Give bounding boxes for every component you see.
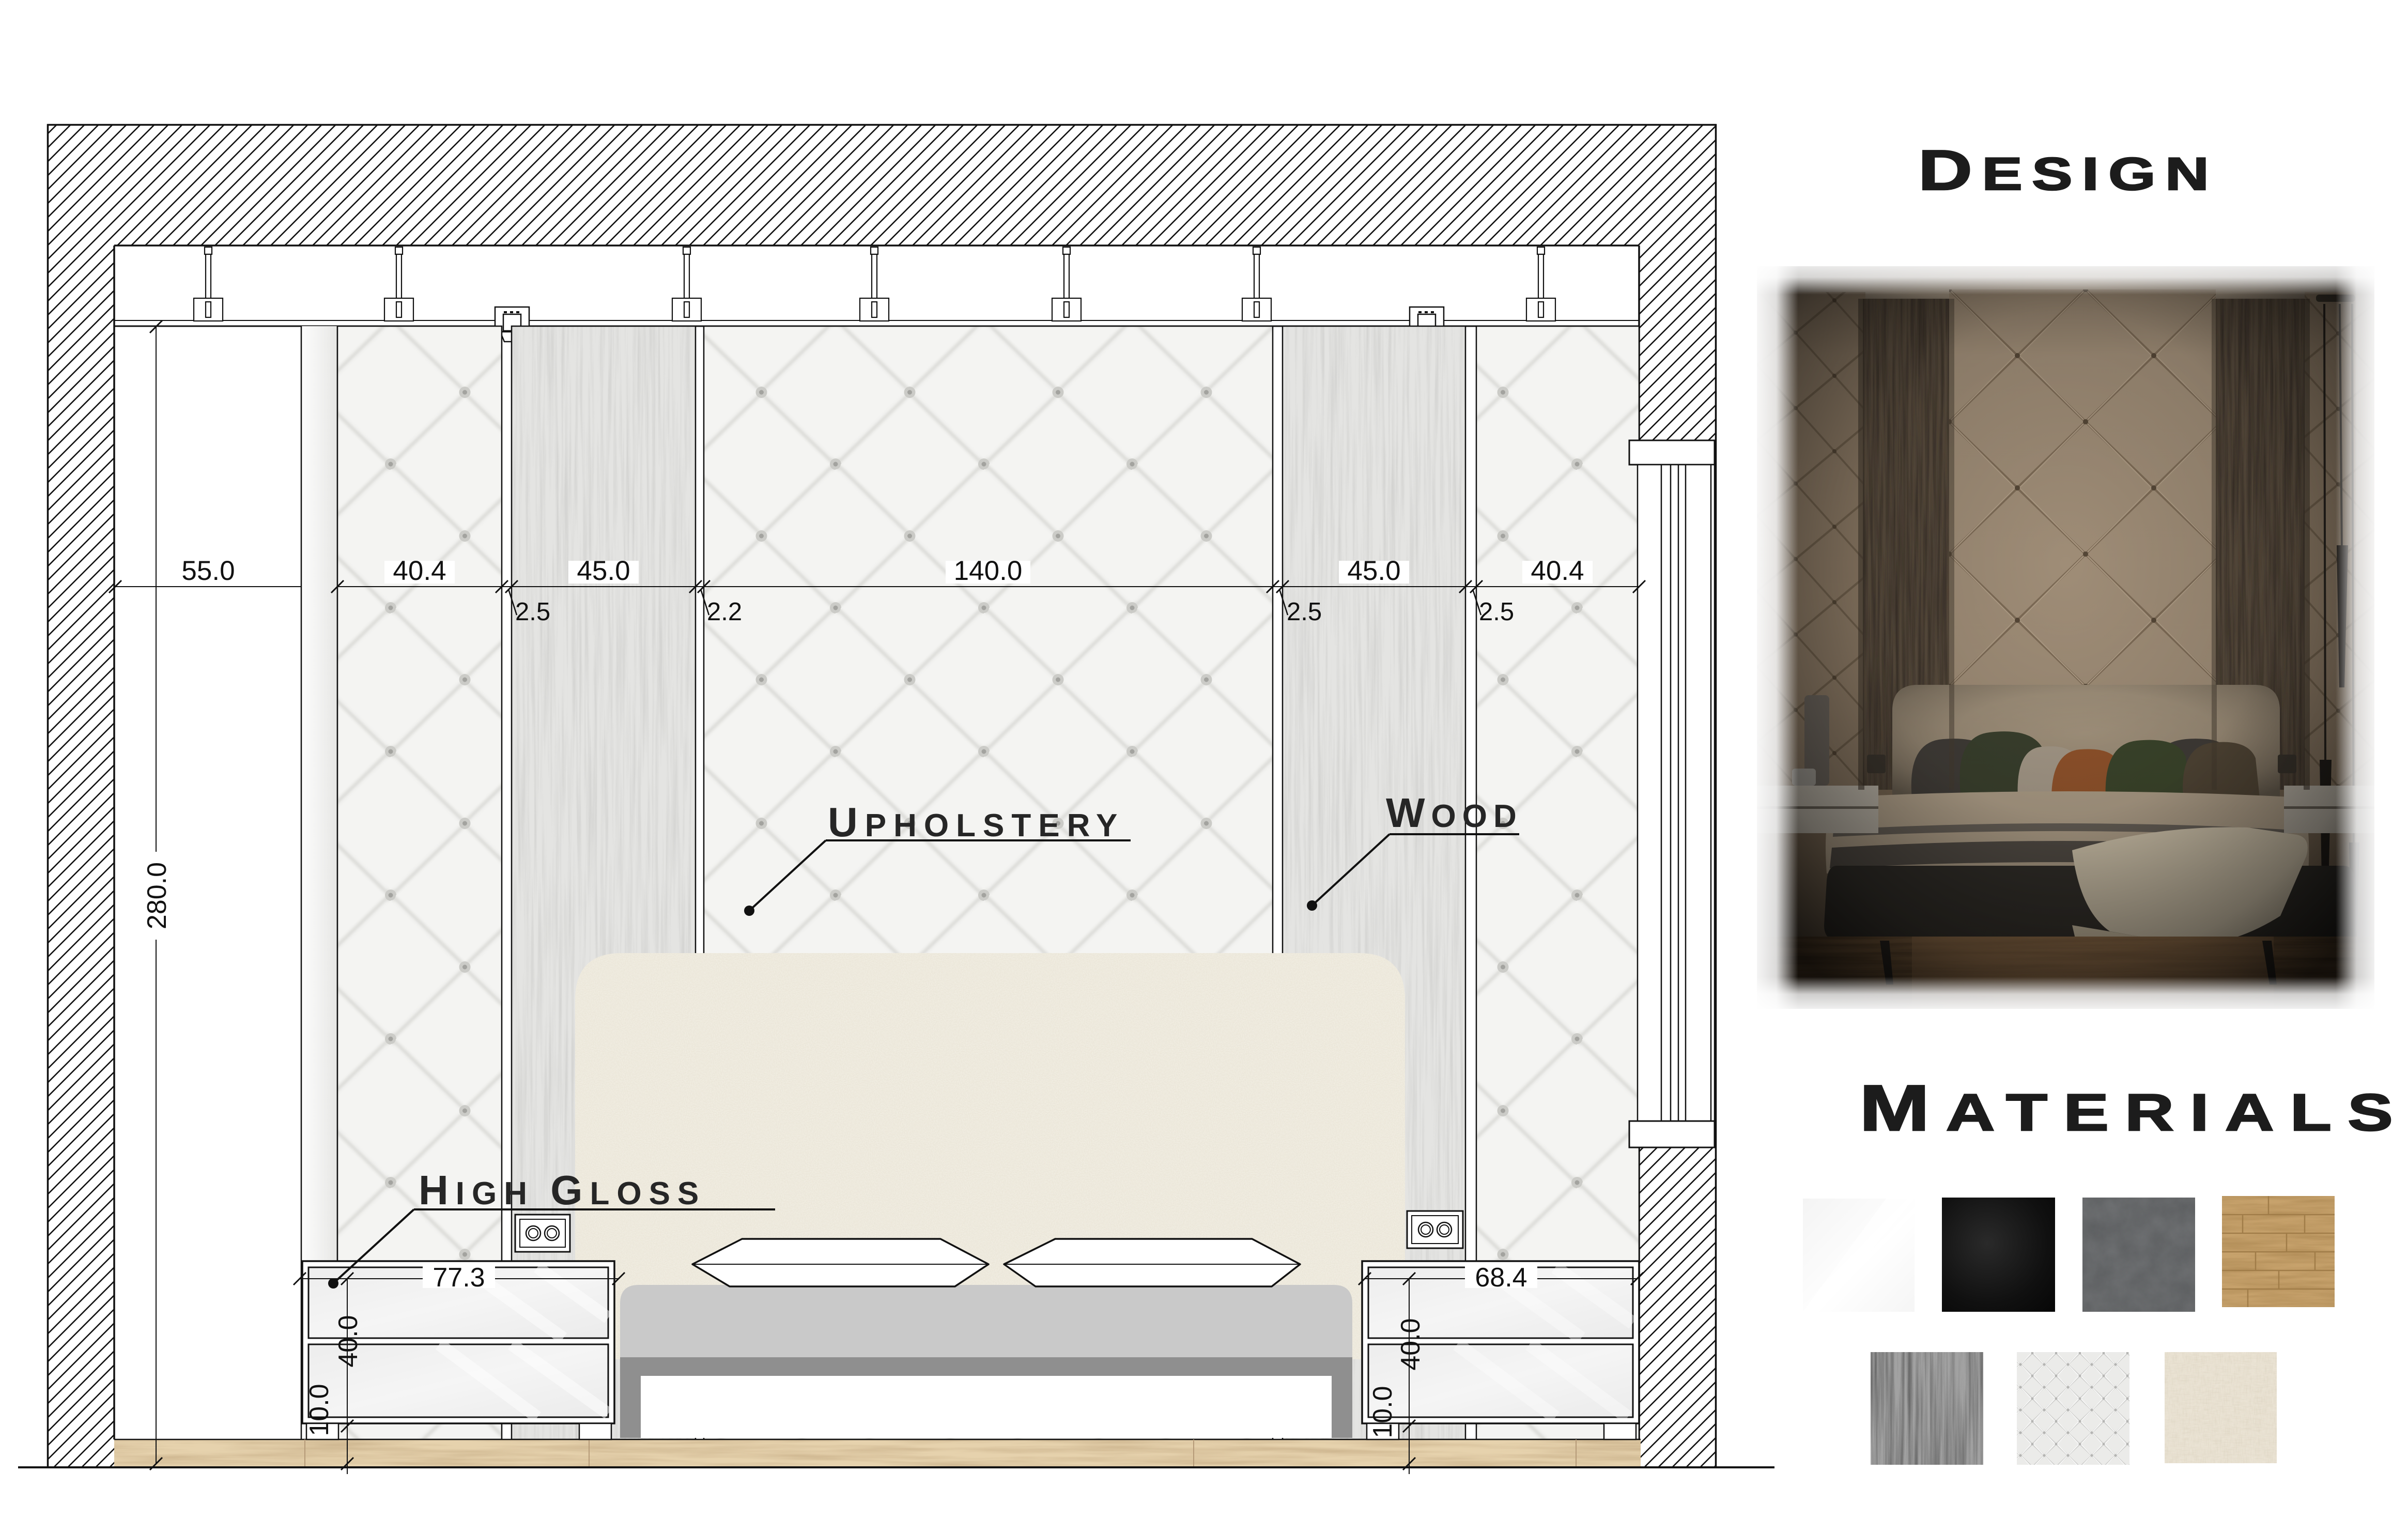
svg-text:77.3: 77.3 <box>433 1263 485 1293</box>
svg-text:68.4: 68.4 <box>1475 1263 1527 1293</box>
svg-text:45.0: 45.0 <box>1347 556 1400 586</box>
svg-text:45.0: 45.0 <box>577 556 630 586</box>
svg-text:2.5: 2.5 <box>1479 598 1514 626</box>
svg-text:280.0: 280.0 <box>142 862 172 929</box>
svg-text:10.0: 10.0 <box>1368 1386 1398 1438</box>
svg-text:140.0: 140.0 <box>954 556 1023 586</box>
svg-text:2.5: 2.5 <box>1287 598 1322 626</box>
svg-text:10.0: 10.0 <box>304 1384 334 1436</box>
svg-text:40.4: 40.4 <box>393 556 446 586</box>
svg-text:55.0: 55.0 <box>181 556 235 586</box>
svg-text:2.5: 2.5 <box>515 598 550 626</box>
svg-text:40.4: 40.4 <box>1531 556 1584 586</box>
svg-text:DESIGN: DESIGN <box>1918 139 2218 202</box>
svg-text:40.0: 40.0 <box>1396 1318 1426 1370</box>
svg-text:2.2: 2.2 <box>707 598 742 626</box>
svg-text:40.0: 40.0 <box>333 1315 363 1367</box>
svg-text:MATERIALS: MATERIALS <box>1859 1071 2408 1144</box>
